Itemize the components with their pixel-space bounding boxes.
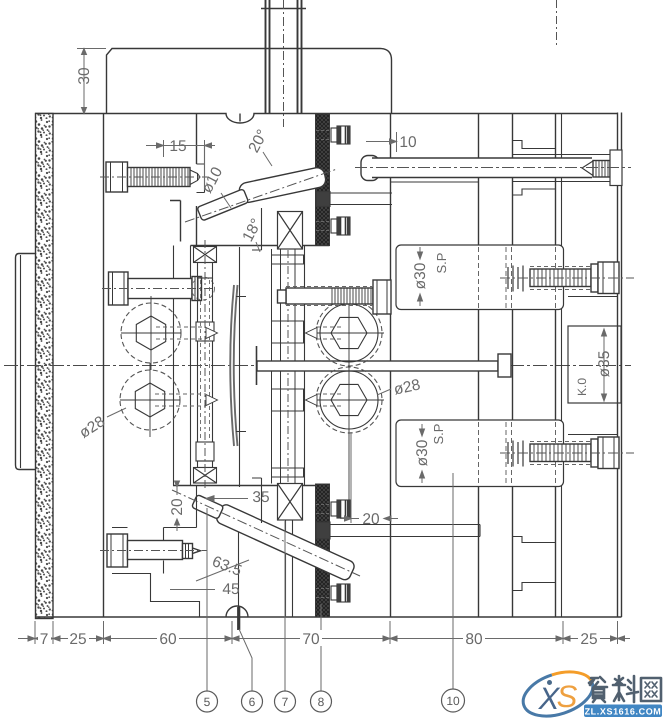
svg-text:60: 60 — [159, 631, 177, 648]
svg-text:8: 8 — [318, 695, 325, 709]
svg-text:25: 25 — [69, 631, 86, 648]
svg-text:ø30: ø30 — [412, 262, 429, 289]
svg-text:25: 25 — [580, 631, 597, 648]
svg-text:ø10: ø10 — [199, 164, 227, 196]
svg-text:20°: 20° — [245, 127, 271, 156]
svg-text:S.P: S.P — [434, 253, 449, 274]
svg-text:20: 20 — [169, 498, 186, 516]
svg-text:K.0: K.0 — [575, 378, 589, 396]
svg-text:ø35: ø35 — [596, 351, 613, 378]
svg-text:S.P: S.P — [431, 424, 446, 445]
svg-text:10: 10 — [399, 134, 417, 151]
svg-text:35: 35 — [252, 489, 269, 506]
svg-text:7: 7 — [40, 631, 49, 648]
svg-text:6: 6 — [249, 695, 256, 709]
svg-text:80: 80 — [465, 631, 483, 648]
svg-text:70: 70 — [302, 631, 320, 648]
svg-text:45: 45 — [222, 581, 239, 598]
svg-text:15: 15 — [169, 138, 186, 155]
svg-text:10: 10 — [446, 694, 460, 708]
svg-text:ZL.XS1616.COM: ZL.XS1616.COM — [585, 707, 662, 717]
svg-text:30: 30 — [76, 67, 93, 85]
svg-text:S: S — [557, 679, 578, 714]
svg-text:7: 7 — [282, 695, 289, 709]
svg-text:ø30: ø30 — [414, 439, 431, 466]
svg-text:20: 20 — [362, 511, 380, 528]
svg-text:ø28: ø28 — [392, 376, 422, 398]
svg-text:5: 5 — [204, 695, 211, 709]
